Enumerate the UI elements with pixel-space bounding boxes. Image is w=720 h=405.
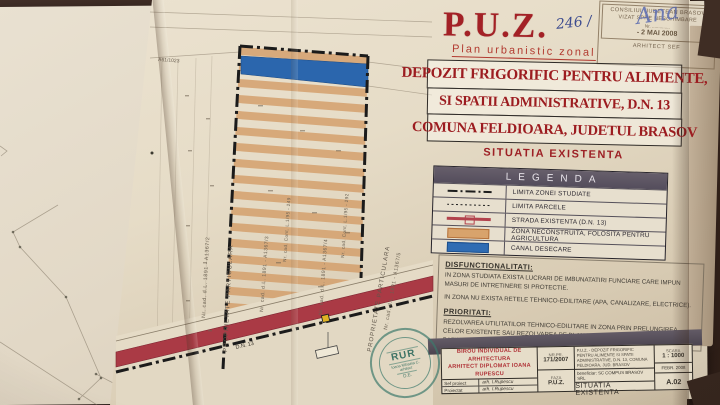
disfunctionalitati-title: DISFUNCTIONALITATI: <box>445 260 533 272</box>
title-block-firm-column: BIROU INDIVIDUAL DE ARHITECTURA ARHITECT… <box>442 348 539 394</box>
dash-dot-line-symbol <box>433 183 506 198</box>
project-title-line3: COMUNA FELDIOARA, JUDETUL BRASOV <box>427 113 683 146</box>
title-block-project-column: P.U.Z. - DEPOZIT FRIGORIFIC PENTRU ALIME… <box>575 345 656 390</box>
sheet-title: SITUATIA EXISTENTA <box>575 382 654 397</box>
crew-row-2: Proiectat arh. I.Rupescu <box>442 385 537 394</box>
project-number-value: 171/2007 <box>538 357 574 364</box>
firm-name-line2: ARHITECT DIPLOMAT IOANA RUPESCU <box>442 363 537 380</box>
title-block: BIROU INDIVIDUAL DE ARHITECTURA ARHITECT… <box>441 344 694 394</box>
rur-stamp-inner: RUR Ioana Mihaela C. arhitect D.E. <box>374 332 436 394</box>
photo-of-puz-plan-sheet: A61/1023 Nr. cad. d.L. 1891 - A1367/2 PR… <box>0 0 720 405</box>
title-block-number-column: NR.PR. 171/2007 FAZA P.U.Z. <box>538 347 576 392</box>
prioritati-title: PRIORITATI: <box>443 307 491 318</box>
orange-area-symbol <box>432 225 505 240</box>
dotted-line-symbol <box>433 197 506 212</box>
paper-edge-shadow-right <box>672 0 689 405</box>
legend-box: LEGENDA LIMITA ZONEI STUDIATE LIMITA PAR… <box>431 165 669 260</box>
paper-fold-crease-middle <box>291 0 298 405</box>
project-number-cell: NR.PR. 171/2007 <box>538 347 574 369</box>
blue-area-symbol <box>432 239 505 254</box>
phase-value: P.U.Z. <box>538 380 574 387</box>
crew-role: Proiectat <box>442 387 479 394</box>
firm-name-line1: BIROU INDIVIDUAL DE ARHITECTURA <box>442 348 537 365</box>
stamp-role: ARHITECT SEF <box>600 42 712 53</box>
puz-title: P.U.Z. <box>443 4 624 47</box>
phase-cell: FAZA P.U.Z. <box>538 368 574 391</box>
project-description: P.U.Z. - DEPOZIT FRIGORIFIC PENTRU ALIME… <box>575 345 654 370</box>
crew-name: arh. I.Rupescu <box>479 386 537 393</box>
legend-label: CANAL DESECARE <box>505 245 665 257</box>
red-road-symbol <box>433 211 506 226</box>
left-cadastral-label: Nr. cad. d.L. 1891 - A1367/2 <box>201 236 211 318</box>
